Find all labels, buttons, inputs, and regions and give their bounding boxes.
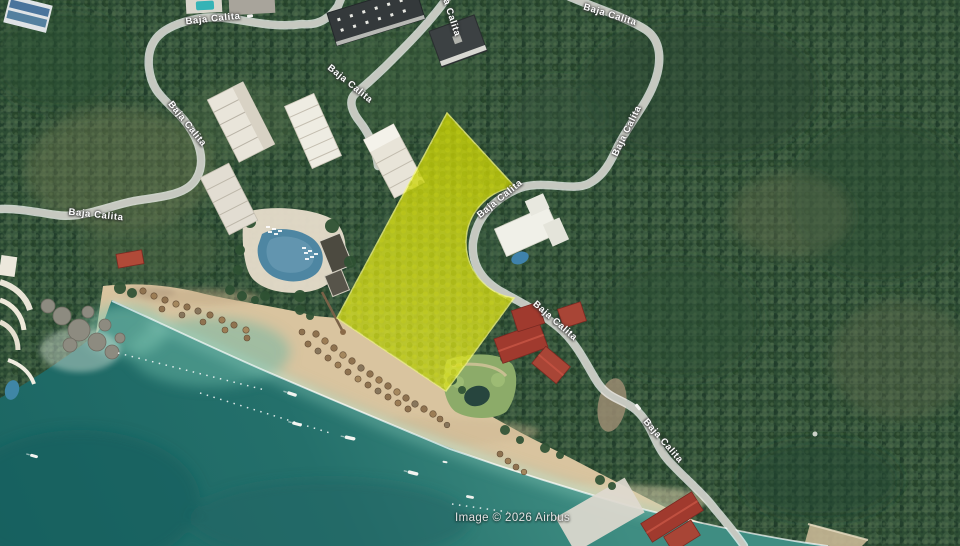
satellite-map-viewport[interactable]: Baja Calita Baja Calita Baja Calita Baja… xyxy=(0,0,960,546)
satellite-imagery xyxy=(0,0,960,546)
map-attribution: Image © 2026 Airbus xyxy=(455,512,570,524)
